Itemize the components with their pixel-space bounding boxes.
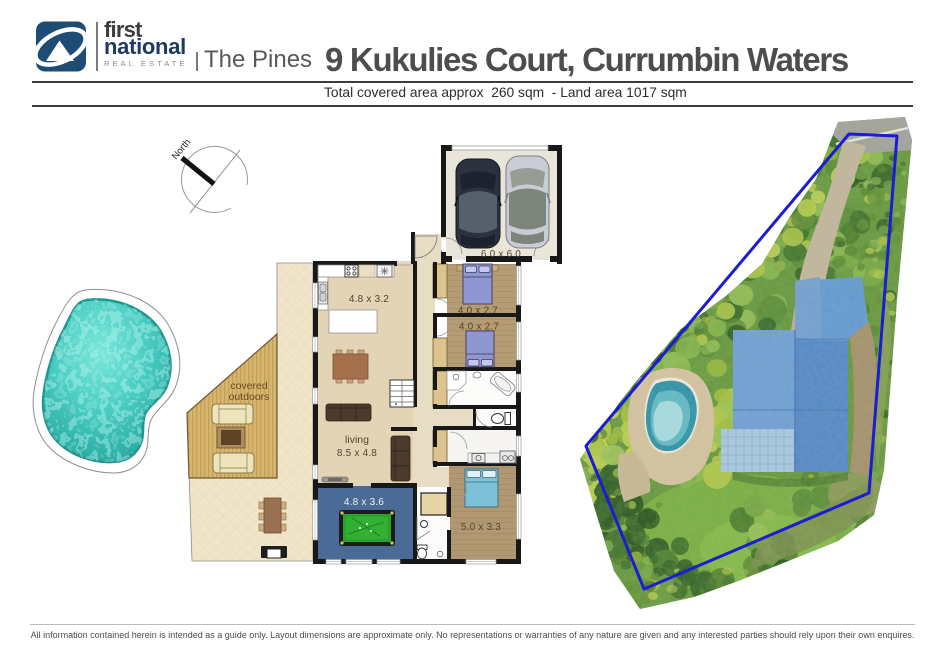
svg-text:living: living bbox=[345, 434, 369, 446]
svg-text:5.0 x 3.3: 5.0 x 3.3 bbox=[461, 522, 501, 533]
svg-text:4.0 x 2.7: 4.0 x 2.7 bbox=[458, 306, 498, 317]
svg-text:outdoors: outdoors bbox=[229, 391, 270, 403]
svg-text:4.8 x 3.6: 4.8 x 3.6 bbox=[344, 497, 384, 508]
svg-text:8.5 x 4.8: 8.5 x 4.8 bbox=[337, 448, 377, 459]
svg-text:6.0 x 6.0: 6.0 x 6.0 bbox=[481, 249, 521, 260]
svg-text:4.8 x 3.2: 4.8 x 3.2 bbox=[349, 294, 389, 305]
